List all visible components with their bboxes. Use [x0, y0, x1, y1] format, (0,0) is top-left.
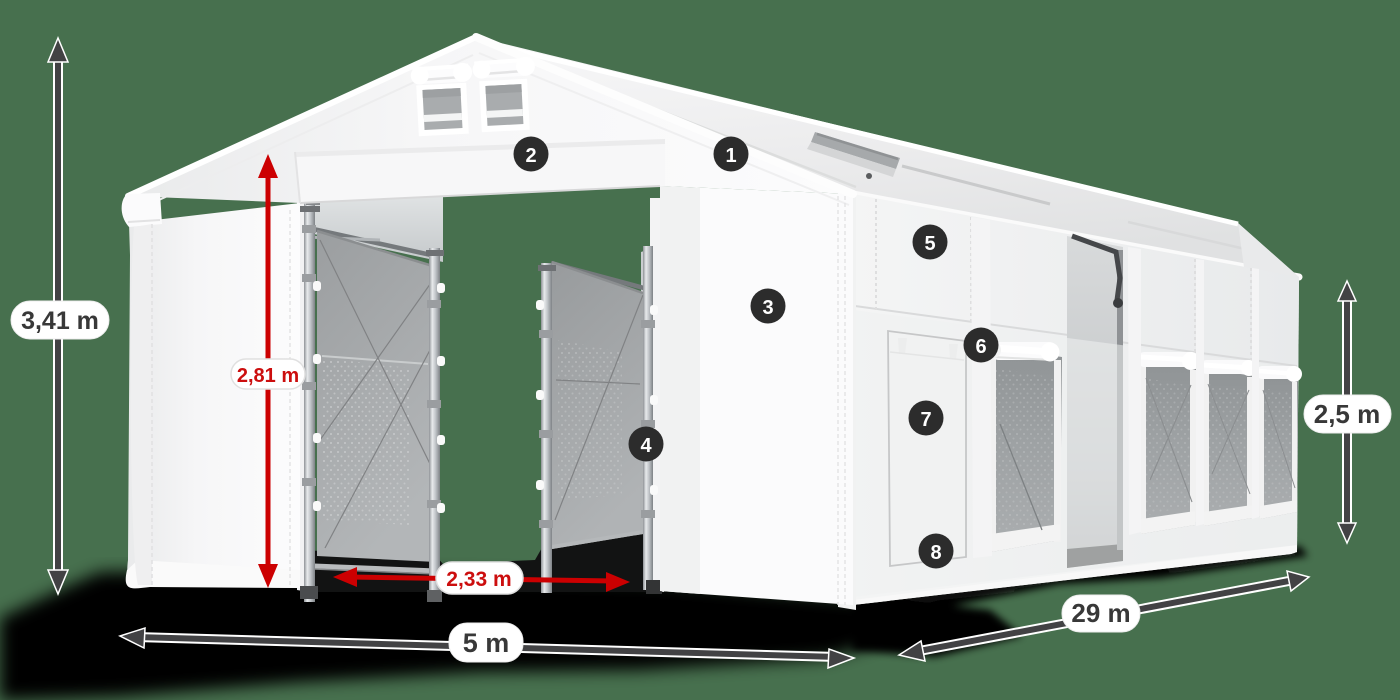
svg-text:8: 8 — [930, 542, 941, 564]
svg-text:2: 2 — [525, 145, 536, 167]
svg-text:5 m: 5 m — [463, 628, 510, 658]
svg-text:2,5 m: 2,5 m — [1314, 399, 1381, 429]
svg-text:2,33 m: 2,33 m — [446, 568, 511, 591]
svg-text:4: 4 — [640, 435, 652, 457]
svg-text:5: 5 — [924, 233, 935, 255]
svg-text:6: 6 — [975, 336, 986, 358]
svg-text:29 m: 29 m — [1071, 598, 1130, 628]
svg-text:3: 3 — [762, 297, 773, 319]
svg-text:3,41 m: 3,41 m — [21, 307, 99, 335]
svg-text:2,81 m: 2,81 m — [237, 365, 299, 387]
svg-text:1: 1 — [725, 145, 736, 167]
svg-text:7: 7 — [920, 409, 931, 431]
